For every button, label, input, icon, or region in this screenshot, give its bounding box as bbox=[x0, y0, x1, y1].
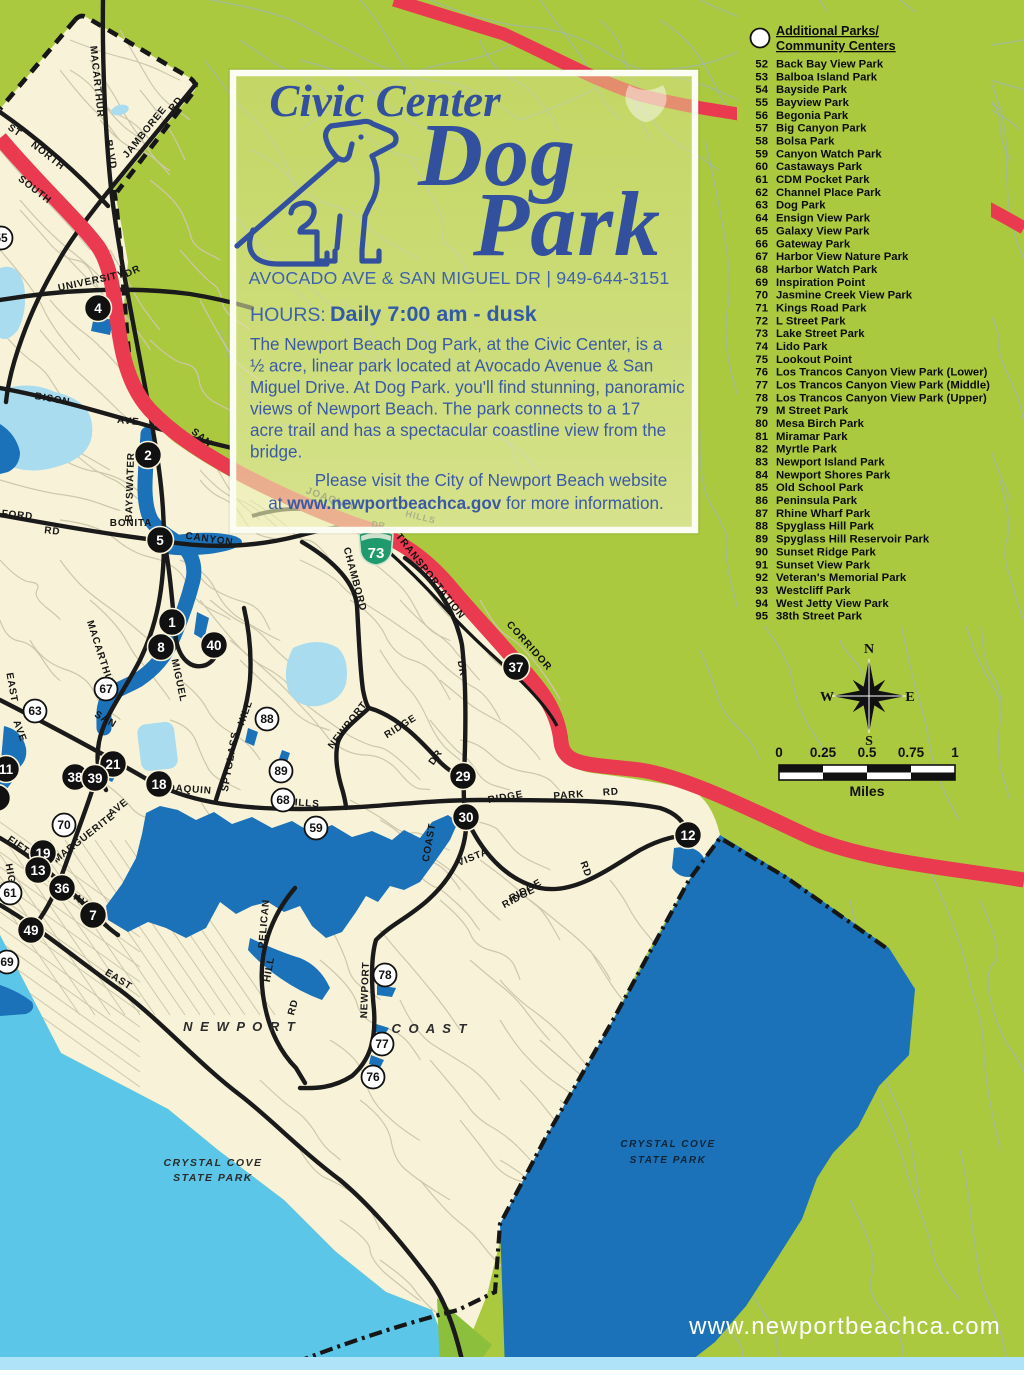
svg-text:88: 88 bbox=[260, 712, 274, 726]
svg-text:69: 69 bbox=[755, 277, 768, 289]
svg-text:53: 53 bbox=[755, 71, 768, 83]
svg-text:52: 52 bbox=[755, 59, 768, 71]
svg-text:95: 95 bbox=[755, 611, 768, 623]
svg-text:Bayview Park: Bayview Park bbox=[776, 97, 850, 109]
svg-text:29: 29 bbox=[455, 769, 470, 784]
svg-text:Rhine Wharf Park: Rhine Wharf Park bbox=[776, 508, 871, 520]
svg-text:Additional Parks/: Additional Parks/ bbox=[776, 24, 879, 38]
svg-text:PARK: PARK bbox=[553, 789, 584, 802]
svg-text:60: 60 bbox=[755, 161, 768, 173]
svg-text:West Jetty View Park: West Jetty View Park bbox=[776, 598, 889, 610]
svg-text:Balboa Island Park: Balboa Island Park bbox=[776, 71, 878, 83]
svg-text:2: 2 bbox=[144, 448, 152, 463]
svg-text:37: 37 bbox=[508, 660, 523, 675]
svg-text:Harbor Watch Park: Harbor Watch Park bbox=[776, 264, 878, 276]
svg-text:N: N bbox=[864, 642, 874, 657]
svg-text:18: 18 bbox=[151, 777, 167, 792]
svg-text:88: 88 bbox=[755, 521, 768, 533]
svg-text:63: 63 bbox=[28, 704, 42, 718]
svg-text:71: 71 bbox=[755, 303, 768, 315]
svg-text:93: 93 bbox=[755, 585, 768, 597]
svg-text:0.75: 0.75 bbox=[898, 745, 925, 760]
svg-text:Sunset View Park: Sunset View Park bbox=[776, 559, 871, 571]
svg-text:NEWPORT: NEWPORT bbox=[359, 961, 372, 1018]
svg-text:Bayside Park: Bayside Park bbox=[776, 84, 848, 96]
svg-text:Myrtle Park: Myrtle Park bbox=[776, 444, 838, 456]
svg-text:L Street Park: L Street Park bbox=[776, 315, 846, 327]
svg-text:78: 78 bbox=[378, 968, 392, 982]
svg-text:Miguel Drive. At Dog Park. you: Miguel Drive. At Dog Park. you'll find s… bbox=[250, 378, 685, 397]
svg-text:80: 80 bbox=[755, 418, 768, 430]
svg-text:86: 86 bbox=[755, 495, 768, 507]
svg-text:Ensign View Park: Ensign View Park bbox=[776, 213, 871, 225]
svg-text:Spyglass Hill Park: Spyglass Hill Park bbox=[776, 521, 875, 533]
svg-text:Please visit the City of Newpo: Please visit the City of Newport Beach w… bbox=[315, 471, 667, 490]
svg-text:67: 67 bbox=[755, 251, 768, 263]
svg-text:STATE PARK: STATE PARK bbox=[173, 1172, 253, 1184]
svg-text:Harbor View Nature Park: Harbor View Nature Park bbox=[776, 251, 909, 263]
svg-text:59: 59 bbox=[309, 821, 323, 835]
svg-text:55: 55 bbox=[755, 97, 768, 109]
svg-text:W: W bbox=[820, 690, 834, 705]
svg-text:87: 87 bbox=[755, 508, 768, 520]
svg-text:56: 56 bbox=[755, 110, 768, 122]
svg-text:84: 84 bbox=[755, 469, 768, 481]
svg-text:36: 36 bbox=[54, 881, 70, 896]
svg-text:11: 11 bbox=[0, 762, 14, 777]
svg-text:RD: RD bbox=[44, 525, 61, 538]
svg-text:58: 58 bbox=[755, 136, 768, 148]
svg-text:82: 82 bbox=[755, 444, 768, 456]
svg-text:405: 405 bbox=[634, 99, 658, 115]
svg-text:0.25: 0.25 bbox=[810, 745, 837, 760]
svg-text:38: 38 bbox=[67, 770, 83, 785]
svg-text:13: 13 bbox=[30, 863, 46, 878]
svg-text:94: 94 bbox=[755, 598, 768, 610]
svg-text:Lake Street Park: Lake Street Park bbox=[776, 328, 865, 340]
svg-text:67: 67 bbox=[99, 682, 113, 696]
svg-text:76: 76 bbox=[755, 367, 768, 379]
svg-text:www.newportbeachca.com: www.newportbeachca.com bbox=[688, 1313, 1001, 1340]
svg-text:M Street Park: M Street Park bbox=[776, 405, 849, 417]
svg-text:5: 5 bbox=[156, 533, 164, 548]
svg-text:Westcliff Park: Westcliff Park bbox=[776, 585, 851, 597]
svg-text:73: 73 bbox=[368, 545, 385, 562]
svg-text:72: 72 bbox=[755, 315, 768, 327]
svg-text:STATE PARK: STATE PARK bbox=[630, 1155, 707, 1166]
svg-text:Lookout Point: Lookout Point bbox=[776, 354, 852, 366]
svg-text:Old School Park: Old School Park bbox=[776, 482, 864, 494]
svg-text:Channel Place Park: Channel Place Park bbox=[776, 187, 882, 199]
svg-text:Galaxy View Park: Galaxy View Park bbox=[776, 225, 870, 237]
svg-text:Jasmine Creek View Park: Jasmine Creek View Park bbox=[776, 290, 913, 302]
svg-text:63: 63 bbox=[755, 200, 768, 212]
svg-text:91: 91 bbox=[755, 559, 768, 571]
svg-text:39: 39 bbox=[87, 771, 102, 786]
svg-text:81: 81 bbox=[755, 431, 768, 443]
svg-text:Big Canyon Park: Big Canyon Park bbox=[776, 123, 867, 135]
svg-text:79: 79 bbox=[755, 405, 768, 417]
svg-text:AVOCADO AVE & SAN MIGUEL DR |: AVOCADO AVE & SAN MIGUEL DR | 949-644-31… bbox=[249, 268, 670, 288]
svg-text:Kings Road Park: Kings Road Park bbox=[776, 303, 867, 315]
svg-text:BONITA: BONITA bbox=[110, 518, 152, 529]
svg-text:62: 62 bbox=[755, 187, 768, 199]
svg-text:Peninsula Park: Peninsula Park bbox=[776, 495, 858, 507]
svg-text:Community Centers: Community Centers bbox=[776, 39, 896, 53]
svg-text:1: 1 bbox=[951, 745, 959, 760]
svg-text:Miles: Miles bbox=[849, 783, 884, 799]
svg-text:Veteran's Memorial Park: Veteran's Memorial Park bbox=[776, 572, 907, 584]
svg-text:RD: RD bbox=[602, 786, 619, 798]
svg-text:7: 7 bbox=[89, 908, 97, 923]
svg-text:64: 64 bbox=[755, 213, 768, 225]
svg-text:38th Street Park: 38th Street Park bbox=[776, 611, 863, 623]
svg-text:55: 55 bbox=[0, 231, 8, 245]
svg-text:Castaways Park: Castaways Park bbox=[776, 161, 863, 173]
svg-text:Daily 7:00 am - dusk: Daily 7:00 am - dusk bbox=[330, 302, 537, 326]
svg-text:½ acre, linear park located at: ½ acre, linear park located at Avocado A… bbox=[250, 357, 653, 376]
svg-text:Gateway Park: Gateway Park bbox=[776, 238, 851, 250]
svg-text:68: 68 bbox=[755, 264, 768, 276]
svg-text:89: 89 bbox=[755, 534, 768, 546]
svg-text:CRYSTAL COVE: CRYSTAL COVE bbox=[163, 1157, 262, 1169]
svg-text:AVE: AVE bbox=[117, 415, 140, 428]
svg-text:83: 83 bbox=[755, 457, 768, 469]
svg-text:Dog Park: Dog Park bbox=[776, 200, 826, 212]
svg-text:75: 75 bbox=[755, 354, 768, 366]
svg-text:89: 89 bbox=[274, 764, 288, 778]
svg-text:0.5: 0.5 bbox=[858, 745, 877, 760]
svg-text:Los Trancos Canyon View Park (: Los Trancos Canyon View Park (Upper) bbox=[776, 392, 987, 404]
svg-text:73: 73 bbox=[755, 328, 768, 340]
svg-text:49: 49 bbox=[23, 923, 38, 938]
svg-text:at www.newportbeachca.gov for: at www.newportbeachca.gov for more infor… bbox=[268, 494, 664, 513]
svg-text:30: 30 bbox=[458, 810, 473, 825]
svg-text:59: 59 bbox=[755, 148, 768, 160]
svg-text:74: 74 bbox=[755, 341, 768, 353]
svg-text:65: 65 bbox=[755, 225, 768, 237]
svg-text:views of Newport Beach. The pa: views of Newport Beach. The park connect… bbox=[250, 400, 640, 419]
svg-text:77: 77 bbox=[755, 380, 768, 392]
svg-text:76: 76 bbox=[366, 1070, 380, 1084]
svg-text:0: 0 bbox=[775, 745, 783, 760]
svg-text:61: 61 bbox=[755, 174, 768, 186]
svg-text:Los Trancos Canyon View Park (: Los Trancos Canyon View Park (Middle) bbox=[776, 380, 990, 392]
svg-text:61: 61 bbox=[3, 886, 17, 900]
svg-text:Bolsa Park: Bolsa Park bbox=[776, 136, 835, 148]
svg-text:68: 68 bbox=[276, 793, 290, 807]
svg-text:54: 54 bbox=[755, 84, 768, 96]
svg-text:90: 90 bbox=[755, 546, 768, 558]
svg-text:85: 85 bbox=[755, 482, 768, 494]
svg-text:Canyon Watch Park: Canyon Watch Park bbox=[776, 148, 882, 160]
svg-text:Lido Park: Lido Park bbox=[776, 341, 828, 353]
svg-text:Back Bay View Park: Back Bay View Park bbox=[776, 59, 884, 71]
svg-text:92: 92 bbox=[755, 572, 768, 584]
svg-text:Sunset Ridge Park: Sunset Ridge Park bbox=[776, 546, 877, 558]
svg-text:CRYSTAL COVE: CRYSTAL COVE bbox=[620, 1139, 715, 1150]
svg-text:acre trail and has a spectacul: acre trail and has a spectacular coastli… bbox=[250, 421, 666, 440]
svg-text:Park: Park bbox=[472, 173, 661, 275]
svg-text:Mesa Birch Park: Mesa Birch Park bbox=[776, 418, 865, 430]
svg-text:Inspiration Point: Inspiration Point bbox=[776, 277, 865, 289]
svg-text:21: 21 bbox=[105, 757, 121, 772]
svg-text:Los Trancos Canyon View Park (: Los Trancos Canyon View Park (Lower) bbox=[776, 367, 988, 379]
svg-text:57: 57 bbox=[755, 123, 768, 135]
svg-text:CDM Pocket Park: CDM Pocket Park bbox=[776, 174, 870, 186]
svg-text:HOURS:: HOURS: bbox=[250, 304, 326, 326]
svg-text:Newport Shores Park: Newport Shores Park bbox=[776, 469, 891, 481]
svg-text:Begonia Park: Begonia Park bbox=[776, 110, 849, 122]
svg-text:77: 77 bbox=[375, 1037, 389, 1051]
svg-text:Newport Island Park: Newport Island Park bbox=[776, 457, 885, 469]
svg-text:40: 40 bbox=[206, 638, 221, 653]
svg-text:4: 4 bbox=[94, 301, 102, 316]
svg-text:1: 1 bbox=[168, 615, 176, 630]
svg-text:Spyglass Hill Reservoir Park: Spyglass Hill Reservoir Park bbox=[776, 534, 930, 546]
svg-text:N E W P O R T: N E W P O R T bbox=[183, 1019, 297, 1034]
svg-text:bridge.: bridge. bbox=[250, 443, 302, 462]
svg-text:66: 66 bbox=[755, 238, 768, 250]
svg-text:The Newport Beach Dog Park, at: The Newport Beach Dog Park, at the Civic… bbox=[250, 335, 663, 354]
svg-text:70: 70 bbox=[57, 818, 71, 832]
svg-text:69: 69 bbox=[0, 955, 14, 969]
svg-text:78: 78 bbox=[755, 392, 768, 404]
svg-text:Miramar Park: Miramar Park bbox=[776, 431, 848, 443]
svg-text:12: 12 bbox=[680, 828, 695, 843]
svg-text:E: E bbox=[905, 690, 914, 705]
svg-text:8: 8 bbox=[157, 640, 165, 655]
svg-text:C O A S T: C O A S T bbox=[392, 1021, 469, 1036]
svg-text:70: 70 bbox=[755, 290, 768, 302]
